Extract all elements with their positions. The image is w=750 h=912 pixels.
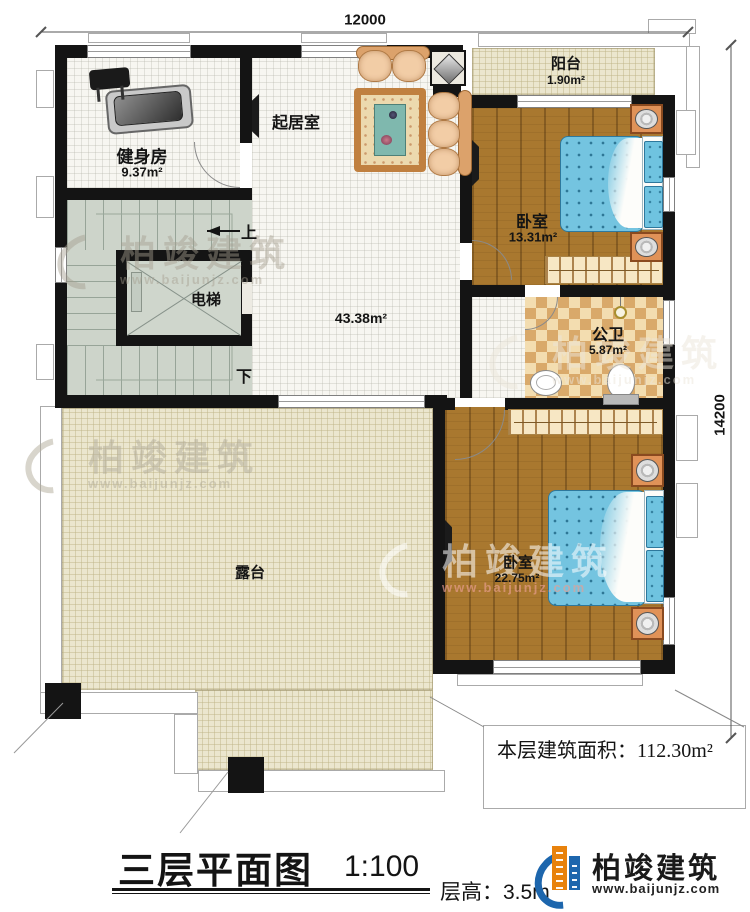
treadmill [89, 62, 195, 148]
brand-logo-icon [536, 844, 588, 902]
toilet-tank [603, 394, 639, 405]
rug-flower [389, 111, 397, 119]
nightstand-lamp [635, 109, 658, 129]
ceiling-lamp [614, 306, 627, 319]
nightstand [630, 104, 663, 134]
tv-wall-mounted [472, 140, 479, 186]
living-room-area: 43.38m² [335, 310, 387, 326]
elevator-counterweight [131, 272, 142, 312]
sofa-back [458, 90, 472, 176]
terrace-label: 露台 [235, 562, 265, 583]
dimension-top: 12000 [344, 12, 386, 29]
tv-wall-mounted [252, 94, 259, 138]
elevator-shaft [116, 250, 252, 346]
nightstand [631, 454, 664, 487]
sofa-cushion [358, 50, 392, 82]
bedroom-top-area: 13.31m² [509, 230, 557, 245]
balcony-area: 1.90m² [547, 73, 585, 87]
title-underline [112, 893, 430, 894]
bed-pillow [646, 550, 664, 602]
floor-height-note: 层高：3.5m [440, 876, 550, 906]
treadmill-console [89, 67, 131, 90]
nightstand-lamp [636, 612, 659, 635]
logo-building-blue [569, 856, 580, 890]
rug-field [361, 95, 419, 165]
nightstand [630, 232, 663, 262]
sofa-cushion [428, 92, 460, 120]
stairs-down-label: 下 [236, 363, 252, 387]
bed-blanket [608, 138, 642, 228]
sofa-cushion [428, 120, 460, 148]
treadmill-rail [96, 88, 100, 102]
elevator-label: 电梯 [191, 289, 221, 310]
tv-wall-mounted [445, 520, 452, 568]
plan-scale: 1:100 [344, 850, 419, 884]
bedroom-bottom-area: 22.75m² [495, 571, 540, 585]
bathroom-area: 5.87m² [589, 343, 627, 357]
bedroom-bottom-label: 卧室 [503, 552, 533, 573]
wardrobe [508, 409, 663, 435]
bed-pillow [644, 186, 663, 228]
bathroom-sink [530, 370, 562, 396]
sofa-cushion [392, 50, 426, 82]
bedroom-top-label: 卧室 [516, 208, 548, 232]
dimension-right: 14200 [712, 394, 729, 436]
rug-flower [381, 135, 392, 145]
sofa-cushion [428, 148, 460, 176]
elevator-door-opening [242, 282, 252, 314]
sofa-set [352, 44, 472, 174]
title-underline [112, 888, 430, 891]
bed-pillow [644, 141, 663, 183]
nightstand [631, 607, 664, 640]
brand-url: www.baijunjz.com [592, 881, 720, 896]
corner-table [430, 50, 466, 86]
floor-area-note: 本层建筑面积：112.30m² [497, 734, 713, 763]
nightstand-lamp [635, 237, 658, 257]
bed-blanket [600, 492, 644, 602]
toilet-bowl [607, 364, 635, 398]
bed-pillow [646, 496, 664, 548]
sink-basin [536, 375, 556, 390]
balcony-label: 阳台 [551, 53, 581, 74]
nightstand-lamp [636, 459, 659, 482]
table-lamp [433, 53, 464, 84]
bathroom-label: 公卫 [592, 321, 624, 345]
gym-area: 9.37m² [121, 165, 162, 180]
plan-title: 三层平面图 [118, 840, 313, 894]
stairs-up-label: 上 [241, 219, 257, 243]
treadmill-rail [120, 86, 124, 100]
logo-building-orange [552, 846, 567, 890]
floor-plan-page: 柏竣建筑 www.baijunjz.com 柏竣建筑 www.baijunjz.… [0, 0, 750, 912]
rug [354, 88, 426, 172]
elevator-cab-floor [127, 261, 241, 335]
living-room-label: 起居室 [272, 109, 320, 133]
